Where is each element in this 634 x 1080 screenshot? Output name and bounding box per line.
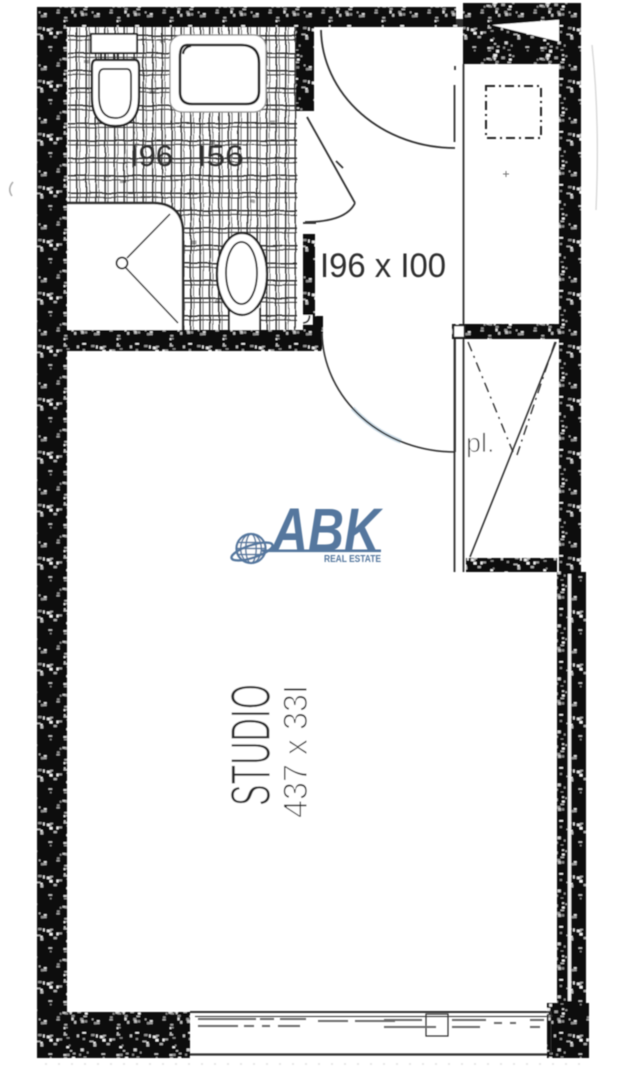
svg-text:STUDIO: STUDIO: [219, 684, 283, 806]
svg-text:REAL ESTATE: REAL ESTATE: [324, 553, 381, 565]
svg-text:437 x 33I: 437 x 33I: [277, 685, 315, 818]
svg-text:I56: I56: [197, 140, 244, 173]
svg-text:pl.: pl.: [466, 428, 495, 458]
svg-text:I96 x I00: I96 x I00: [320, 247, 446, 285]
svg-text:I96: I96: [130, 140, 173, 173]
